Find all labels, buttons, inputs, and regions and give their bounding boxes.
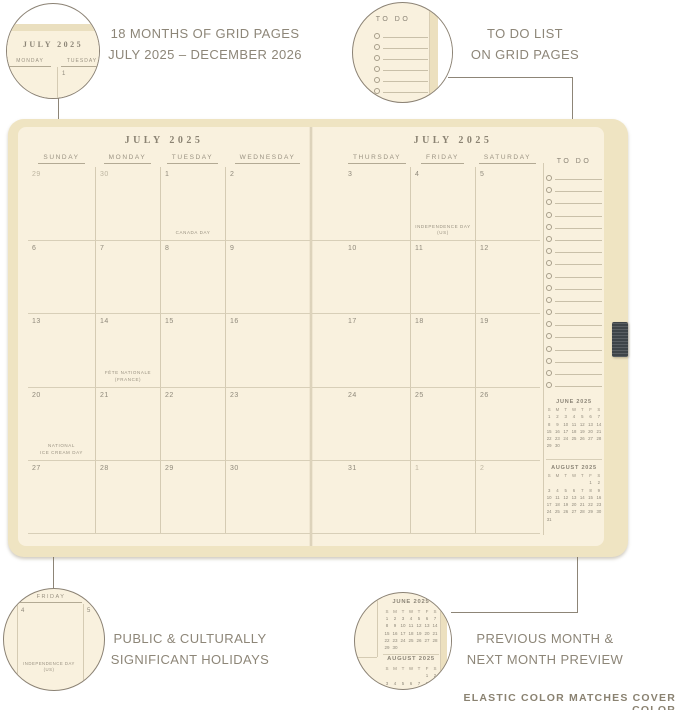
inset-circle-month-previews: JUNE 2025SMTWTFS123456789101112131415161… [354,592,452,690]
mini-date: 29 [383,645,391,652]
mini-calendar-week-row: 10111213141516 [545,495,603,502]
mini-date: 21 [431,631,439,638]
inset-circle-todo: TO DO [352,2,453,103]
mini-date: 10 [562,422,570,429]
mini-date: 26 [415,638,423,645]
date-cell: 20NATIONAL ICE CREAM DAY [28,387,95,460]
mini-date: 16 [391,631,399,638]
todo-circle-icon [374,33,380,39]
left-page-calendar-grid: 29301CANADA DAY267891314FÊTE NATIONALE (… [28,167,310,534]
todo-circle-icon [374,44,380,50]
date-number: 5 [480,171,484,178]
mini-date: 26 [562,509,570,516]
mini-date [562,443,570,450]
mini-date: 13 [423,623,431,630]
mini-date: 11 [407,623,415,630]
todo-separator-line [543,163,544,535]
mini-date [391,673,399,680]
todo-row [546,379,602,391]
mini-calendar-week-row: 2930 [383,645,439,652]
inset-circle-holidays: FRIDAY 4 5 INDEPENDENCE DAY (US) [3,588,105,691]
mini-date: 13 [407,688,415,690]
date-number: 11 [415,245,423,252]
date-cell: 10 [312,240,410,313]
inset-circle-grid-pages: JULY 2025 MONDAY TUESDAY 1 [6,3,100,99]
mini-date [578,443,586,450]
date-cell: 3 [312,167,410,240]
right-page-calendar-grid: 34INDEPENDENCE DAY (US)51011121718192425… [312,167,540,534]
mini-calendar-week-row: 1234567 [545,414,603,421]
date-number: 31 [348,465,357,472]
date-cell: 22 [160,387,225,460]
todo-circle-icon [546,199,552,205]
mini-date: 14 [578,495,586,502]
planner-book: JULY 2025 SUNDAYMONDAYTUESDAYWEDNESDAY 2… [8,119,628,557]
mini-date: 14 [415,688,423,690]
annotation-line: NEXT MONTH PREVIEW [450,650,640,671]
day-header-label: MONDAY [104,154,152,164]
day-header: THURSDAY [312,154,410,164]
date-number: 7 [100,245,104,252]
dow-letter: M [391,609,399,616]
todo-title: TO DO [546,158,602,165]
todo-write-line [555,191,602,192]
todo-circle-icon [546,382,552,388]
date-number: 21 [100,392,109,399]
dow-letter: S [431,609,439,616]
date-cell: 6 [28,240,95,313]
mini-date [578,517,586,524]
mini-date: 4 [570,414,578,421]
todo-row [374,85,428,96]
date-number: 23 [230,392,239,399]
date-cell: 23 [225,387,310,460]
todo-row [374,63,428,74]
dow-letter: T [562,473,570,480]
dow-letter: F [586,473,594,480]
mini-calendar-week-row: 3456789 [545,488,603,495]
date-cell: 12 [475,240,540,313]
mini-date: 22 [545,436,553,443]
todo-write-line [383,48,428,49]
date-cell: 16 [225,313,310,386]
date-number: 8 [165,245,169,252]
date-number: 13 [32,318,41,325]
day-header: SATURDAY [475,154,540,164]
date-number: 1 [165,171,169,178]
mini-date: 15 [423,688,431,690]
day-header: TUESDAY [160,154,225,164]
mini-calendar-title: AUGUST 2025 [545,465,603,473]
todo-row [546,343,602,355]
date-cell: 1CANADA DAY [160,167,225,240]
annotation-elastic-color: ELASTIC COLOR MATCHES COVER COLOR [440,692,676,710]
todo-circle-icon [546,321,552,327]
mini-date: 15 [545,429,553,436]
mini-calendar-week-row: 12 [383,673,439,680]
mini-date: 3 [383,681,391,688]
mini-date [586,517,594,524]
mini-calendar-week-row: 891011121314 [383,623,439,630]
annotation-line: JULY 2025 – DECEMBER 2026 [100,45,310,66]
mini-date: 12 [399,688,407,690]
mini-date: 8 [383,623,391,630]
date-cell: 26 [475,387,540,460]
planner-pages: JULY 2025 SUNDAYMONDAYTUESDAYWEDNESDAY 2… [18,127,604,546]
mini-date: 6 [570,488,578,495]
date-number: 16 [230,318,239,325]
mini-date: 1 [383,616,391,623]
date-cell: 14FÊTE NATIONALE (FRANCE) [95,313,160,386]
mini-date: 12 [562,495,570,502]
todo-circle-icon [374,55,380,61]
todo-column: TO DO [546,158,602,391]
callout-line [451,612,578,613]
mini-date: 23 [553,436,561,443]
date-number: 6 [32,245,36,252]
mini-date: 14 [431,623,439,630]
mini-calendar-august: AUGUST 2025SMTWTFS1234567891011121314151… [545,465,603,524]
mini-date: 19 [415,631,423,638]
todo-row [546,257,602,269]
date-cell: 18 [410,313,475,386]
mini-date [570,517,578,524]
mini-date: 31 [545,517,553,524]
day-header-label: SUNDAY [38,154,84,164]
inset-day-header: FRIDAY [20,594,82,603]
mini-date: 28 [431,638,439,645]
mini-date [553,480,561,487]
todo-row [546,233,602,245]
date-cell: 15 [160,313,225,386]
todo-write-line [555,386,602,387]
mini-date: 10 [383,688,391,690]
dow-letter: T [399,666,407,673]
mini-date: 21 [595,429,603,436]
annotation-line: SIGNIFICANT HOLIDAYS [95,650,285,671]
grid-line [57,67,58,98]
mini-date: 28 [578,509,586,516]
date-number: 10 [348,245,357,252]
todo-write-line [555,325,602,326]
mini-calendar-week-row: 24252627282930 [545,509,603,516]
dow-letter: S [545,407,553,414]
todo-write-line [555,277,602,278]
todo-circle-icon [546,358,552,364]
mini-date: 17 [562,429,570,436]
right-page-month-title: JULY 2025 [358,135,548,146]
todo-circle-icon [546,346,552,352]
date-cell: 25 [410,387,475,460]
mini-date: 3 [399,616,407,623]
date-cell: 19 [475,313,540,386]
mini-date [407,673,415,680]
mini-calendar-dow-row: SMTWTFS [545,407,603,414]
todo-row [546,367,602,379]
todo-write-line [555,203,602,204]
elastic-band-loop [612,322,628,357]
mini-calendar-divider [383,654,439,655]
mini-calendar-week-row: 12 [545,480,603,487]
mini-date: 27 [423,638,431,645]
mini-date: 18 [553,502,561,509]
todo-row [546,196,602,208]
todo-row [546,209,602,221]
mini-date: 16 [595,495,603,502]
mini-date: 20 [570,502,578,509]
date-cell: 21 [95,387,160,460]
mini-date: 21 [578,502,586,509]
mini-calendar-week-row: 891011121314 [545,422,603,429]
mini-calendar-week-row: 15161718192021 [383,631,439,638]
mini-date: 2 [553,414,561,421]
date-number: 20 [32,392,41,399]
date-number: 15 [165,318,174,325]
todo-circle-icon [546,187,552,193]
date-cell: 2 [225,167,310,240]
date-cell: 30 [95,167,160,240]
mini-date: 3 [545,488,553,495]
todo-write-line [383,81,428,82]
mini-date: 6 [423,616,431,623]
dow-letter: M [391,666,399,673]
date-cell: 24 [312,387,410,460]
date-number: 18 [415,318,424,325]
todo-write-line [555,289,602,290]
mini-date [570,480,578,487]
todo-write-line [555,228,602,229]
todo-write-line [383,92,428,93]
mini-date: 27 [586,436,594,443]
todo-row [374,52,428,63]
mini-date [545,480,553,487]
date-cell: 17 [312,313,410,386]
todo-write-line [555,264,602,265]
callout-line [448,77,573,78]
mini-calendar-week-row: 17181920212223 [545,502,603,509]
mini-date: 23 [391,638,399,645]
mini-date: 8 [586,488,594,495]
mini-date: 6 [407,681,415,688]
todo-circle-icon [374,99,380,103]
grid-line [377,593,378,657]
mini-date: 10 [399,623,407,630]
date-cell: 11 [410,240,475,313]
inset-date-number: 1 [62,71,65,77]
grid-line [355,657,377,658]
mini-calendar-week-row: 15161718192021 [545,429,603,436]
mini-calendar-week-row: 2930 [545,443,603,450]
inset-todo-list [374,30,428,103]
todo-row [374,74,428,85]
mini-date: 1 [423,673,431,680]
mini-date: 16 [431,688,439,690]
dow-letter: T [562,407,570,414]
mini-date: 4 [391,681,399,688]
mini-date: 4 [407,616,415,623]
mini-date [407,645,415,652]
mini-date [570,443,578,450]
dow-letter: W [407,666,415,673]
mini-date: 9 [595,488,603,495]
mini-calendar-week-row: 31 [545,517,603,524]
todo-circle-icon [546,236,552,242]
mini-date: 20 [586,429,594,436]
mini-date: 14 [595,422,603,429]
mini-date: 18 [570,429,578,436]
mini-date: 28 [595,436,603,443]
dow-letter: S [383,666,391,673]
day-header-label: SATURDAY [479,154,536,164]
todo-row [546,221,602,233]
mini-date: 30 [553,443,561,450]
todo-circle-icon [374,88,380,94]
mini-calendar-week-row: 3456789 [383,681,439,688]
mini-date: 15 [586,495,594,502]
mini-date [383,673,391,680]
mini-date: 19 [562,502,570,509]
todo-list [546,172,602,391]
todo-circle-icon [546,273,552,279]
todo-circle-icon [374,66,380,72]
todo-circle-icon [546,285,552,291]
day-header-label: THURSDAY [348,154,406,164]
inset-mini-calendars: JUNE 2025SMTWTFS123456789101112131415161… [383,599,439,690]
dow-letter: F [586,407,594,414]
dow-letter: T [415,666,423,673]
left-page-month-title: JULY 2025 [18,135,310,146]
inset-day-header: TUESDAY [61,58,100,67]
mini-date: 13 [570,495,578,502]
todo-circle-icon [546,175,552,181]
annotation-grid-pages: 18 MONTHS OF GRID PAGES JULY 2025 – DECE… [100,24,310,66]
dow-letter: W [570,407,578,414]
dow-letter: T [415,609,423,616]
cover-edge [6,24,100,31]
todo-circle-icon [546,248,552,254]
mini-date: 25 [553,509,561,516]
todo-row [546,282,602,294]
date-number: 19 [480,318,489,325]
annotation-holidays: PUBLIC & CULTURALLY SIGNIFICANT HOLIDAYS [95,629,285,671]
mini-date: 12 [415,623,423,630]
mini-date: 18 [407,631,415,638]
todo-circle-icon [546,333,552,339]
dow-letter: S [595,407,603,414]
mini-date: 2 [431,673,439,680]
mini-date: 2 [391,616,399,623]
mini-date: 12 [578,422,586,429]
dow-letter: M [553,407,561,414]
mini-date: 20 [423,631,431,638]
date-cell: 9 [225,240,310,313]
todo-write-line [555,350,602,351]
date-number: 17 [348,318,357,325]
dow-letter: F [423,666,431,673]
mini-date: 24 [545,509,553,516]
mini-date [431,645,439,652]
dow-letter: F [423,609,431,616]
mini-date [415,673,423,680]
date-number: 22 [165,392,174,399]
mini-calendar-week-row: 22232425262728 [383,638,439,645]
todo-circle-icon [546,297,552,303]
mini-calendar-title: JUNE 2025 [545,399,603,407]
inset-todo-title: TO DO [353,16,433,23]
date-number: 9 [230,245,234,252]
annotation-line: PREVIOUS MONTH & [450,629,640,650]
day-header-label: TUESDAY [167,154,218,164]
mini-date: 8 [545,422,553,429]
date-cell: 13 [28,313,95,386]
todo-write-line [555,374,602,375]
mini-date [586,443,594,450]
mini-date: 30 [595,509,603,516]
left-page-day-headers: SUNDAYMONDAYTUESDAYWEDNESDAY [28,154,310,164]
mini-date: 25 [570,436,578,443]
mini-date: 7 [431,616,439,623]
mini-date: 22 [586,502,594,509]
todo-circle-icon [546,309,552,315]
mini-calendar-week-row: 10111213141516 [383,688,439,690]
date-number: 1 [415,465,419,472]
day-header: MONDAY [95,154,160,164]
annotation-todo-list: TO DO LIST ON GRID PAGES [440,24,610,66]
mini-date: 1 [545,414,553,421]
dow-letter: S [431,666,439,673]
date-cell: 8 [160,240,225,313]
todo-row [546,172,602,184]
mini-date: 11 [391,688,399,690]
todo-write-line [555,216,602,217]
todo-row [546,330,602,342]
mini-date: 5 [399,681,407,688]
mini-date: 23 [595,502,603,509]
date-number: 27 [32,465,41,472]
date-number: 29 [165,465,174,472]
mini-date: 22 [383,638,391,645]
mini-date: 24 [399,638,407,645]
date-cell: 31 [312,460,410,533]
mini-date: 17 [399,631,407,638]
mini-date: 5 [562,488,570,495]
mini-date: 9 [431,681,439,688]
mini-date [423,645,431,652]
todo-row [374,30,428,41]
date-cell: 4INDEPENDENCE DAY (US) [410,167,475,240]
annotation-month-previews: PREVIOUS MONTH & NEXT MONTH PREVIEW [450,629,640,671]
todo-write-line [555,337,602,338]
date-number: 2 [480,465,484,472]
mini-calendar-title: AUGUST 2025 [383,656,439,666]
todo-row [374,41,428,52]
day-header: SUNDAY [28,154,95,164]
inset-holiday-label: INDEPENDENCE DAY (US) [15,661,83,674]
mini-date: 3 [562,414,570,421]
mini-date: 4 [553,488,561,495]
date-number: 26 [480,392,489,399]
dow-letter: T [399,609,407,616]
todo-write-line [555,362,602,363]
annotation-line: 18 MONTHS OF GRID PAGES [100,24,310,45]
date-number: 29 [32,171,41,178]
mini-date [578,480,586,487]
mini-date: 19 [578,429,586,436]
mini-calendar-week-row: 22232425262728 [545,436,603,443]
product-feature-image: JULY 2025 MONDAY TUESDAY 1 TO DO FRIDAY … [0,0,679,710]
date-number: 30 [230,465,239,472]
mini-date: 5 [415,616,423,623]
